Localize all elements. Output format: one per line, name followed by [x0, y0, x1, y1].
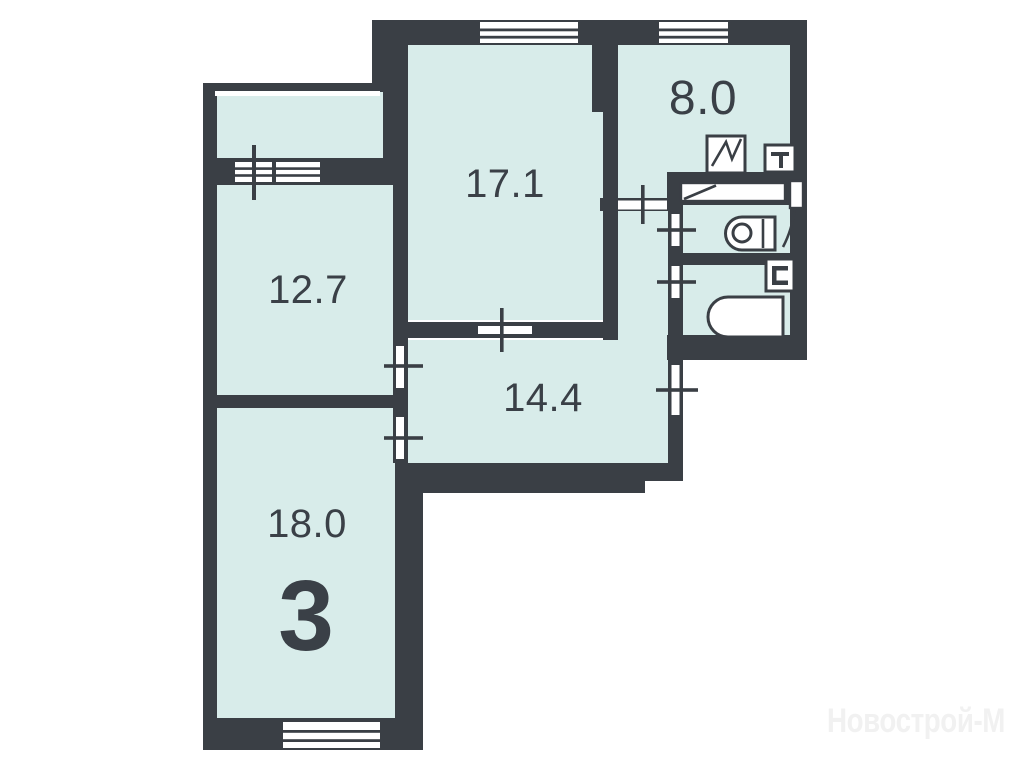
watermark-text: Новострой-М: [827, 702, 1005, 740]
door-mark: [384, 436, 423, 440]
vent-slot: [790, 181, 803, 208]
kitchen-window: [659, 22, 728, 43]
wall-segment: [395, 463, 423, 750]
wall-segment: [667, 335, 807, 360]
wall-segment: [203, 395, 408, 408]
bedroom-large-area-label: 18.0: [267, 502, 347, 546]
sink-glyph: [779, 156, 783, 168]
bathtub-icon: [708, 297, 783, 337]
door-mark: [641, 185, 645, 224]
floor-plan-canvas: 8.0 17.1 12.7 14.4 18.0 3 Новострой-М: [0, 0, 1012, 768]
bedroom-large-window: [283, 722, 380, 748]
wall-segment: [640, 463, 683, 481]
wall-segment: [383, 20, 408, 162]
window-mullion: [276, 174, 320, 177]
window-mullion: [276, 167, 320, 170]
bedroom-small-area-label: 12.7: [268, 268, 348, 312]
wc-shelf: [681, 183, 785, 201]
window-mullion: [283, 730, 380, 733]
wall-segment: [203, 83, 217, 750]
door-mark: [657, 280, 696, 284]
living-room-window: [480, 22, 578, 43]
window-mullion: [659, 29, 728, 32]
balcony-glazing: [215, 91, 380, 96]
sink-glyph: [771, 152, 789, 156]
living-room-area-label: 17.1: [465, 162, 545, 206]
toilet-drain: [733, 224, 751, 242]
window-glass: [276, 162, 320, 182]
wall-segment: [395, 463, 645, 493]
window-mullion: [480, 29, 578, 32]
window-glass: [480, 22, 578, 43]
kitchen-area-label: 8.0: [669, 72, 737, 125]
washbasin-icon: [766, 259, 794, 291]
window-glass: [283, 722, 380, 748]
door-mark: [384, 364, 423, 368]
toilet-icon: [726, 217, 775, 250]
stove-icon: [707, 136, 745, 173]
window-mullion: [480, 36, 578, 39]
window-glass: [659, 22, 728, 43]
washbasin-glyph: [772, 281, 788, 286]
wall-segment: [383, 20, 807, 45]
bathtub-body: [708, 297, 783, 337]
window-mullion: [659, 36, 728, 39]
wall-segment: [592, 45, 603, 112]
floor-plan-drawing: 8.0 17.1 12.7 14.4 18.0 3 Новострой-М: [0, 0, 1012, 768]
balcony-door-mark: [252, 145, 256, 200]
balcony-floor: [215, 91, 383, 158]
wall-segment: [603, 45, 618, 340]
hallway-area-label: 14.4: [503, 376, 583, 420]
wall-segment: [203, 83, 383, 91]
door-mark: [500, 308, 504, 352]
washbasin-body: [766, 259, 794, 291]
window-mullion: [283, 739, 380, 742]
shelf-body: [681, 183, 785, 201]
apartment-room-count: 3: [278, 560, 334, 672]
door-mark: [656, 388, 698, 392]
door-mark: [657, 228, 696, 232]
kitchen-sink-icon: [765, 145, 795, 172]
door-opening: [478, 326, 532, 334]
